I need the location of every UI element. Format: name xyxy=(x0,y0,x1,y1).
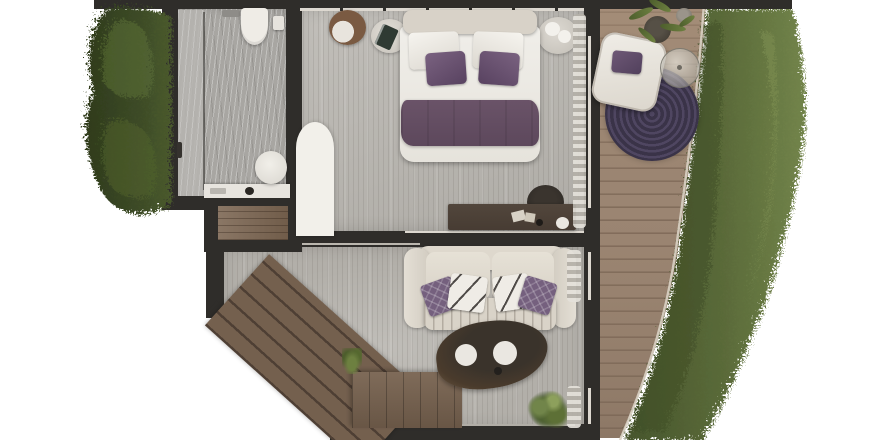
cup-two xyxy=(558,30,571,43)
bath-mat xyxy=(222,10,240,17)
sofa-chevron-cushion-left xyxy=(447,273,489,314)
shower-glass-line xyxy=(203,12,205,190)
shower-zone xyxy=(178,10,204,196)
accent-pillow-left xyxy=(425,51,467,87)
toilet xyxy=(241,8,268,45)
bedroom-curtain xyxy=(573,14,586,228)
headboard xyxy=(403,10,537,34)
vanity-soap-tray xyxy=(210,188,226,194)
arched-white-door xyxy=(296,122,334,236)
divider-sill-line xyxy=(405,231,585,233)
bedroom-right-window xyxy=(588,36,591,208)
table-plate-left xyxy=(455,344,477,366)
glass-table-stem xyxy=(677,65,682,70)
vanity-faucet xyxy=(245,187,254,195)
divider-door-track xyxy=(302,243,420,245)
purple-bed-runner xyxy=(401,100,539,146)
wooden-stool xyxy=(329,10,366,45)
living-potted-plant xyxy=(527,390,569,428)
table-small-bowl xyxy=(494,367,502,375)
desk-paper-two xyxy=(524,212,535,222)
living-curtain-upper xyxy=(567,250,581,302)
desk-knob xyxy=(536,219,543,226)
sprout-plant xyxy=(342,348,362,374)
desk-plate xyxy=(556,217,569,229)
lounge-pillow xyxy=(611,50,643,75)
wardrobe-cabinet xyxy=(218,206,288,240)
living-right-window-upper xyxy=(588,252,591,300)
round-sink xyxy=(255,151,287,184)
wall-bathroom-left xyxy=(162,0,178,210)
living-curtain-lower xyxy=(567,386,581,428)
living-right-window-lower xyxy=(588,388,591,424)
double-bed xyxy=(400,10,540,162)
toilet-flush-plate xyxy=(273,16,284,30)
shower-fixture xyxy=(177,142,182,158)
accent-pillow-right xyxy=(478,51,520,87)
table-plate-right xyxy=(493,341,517,365)
floor-plan-stage xyxy=(0,0,890,440)
